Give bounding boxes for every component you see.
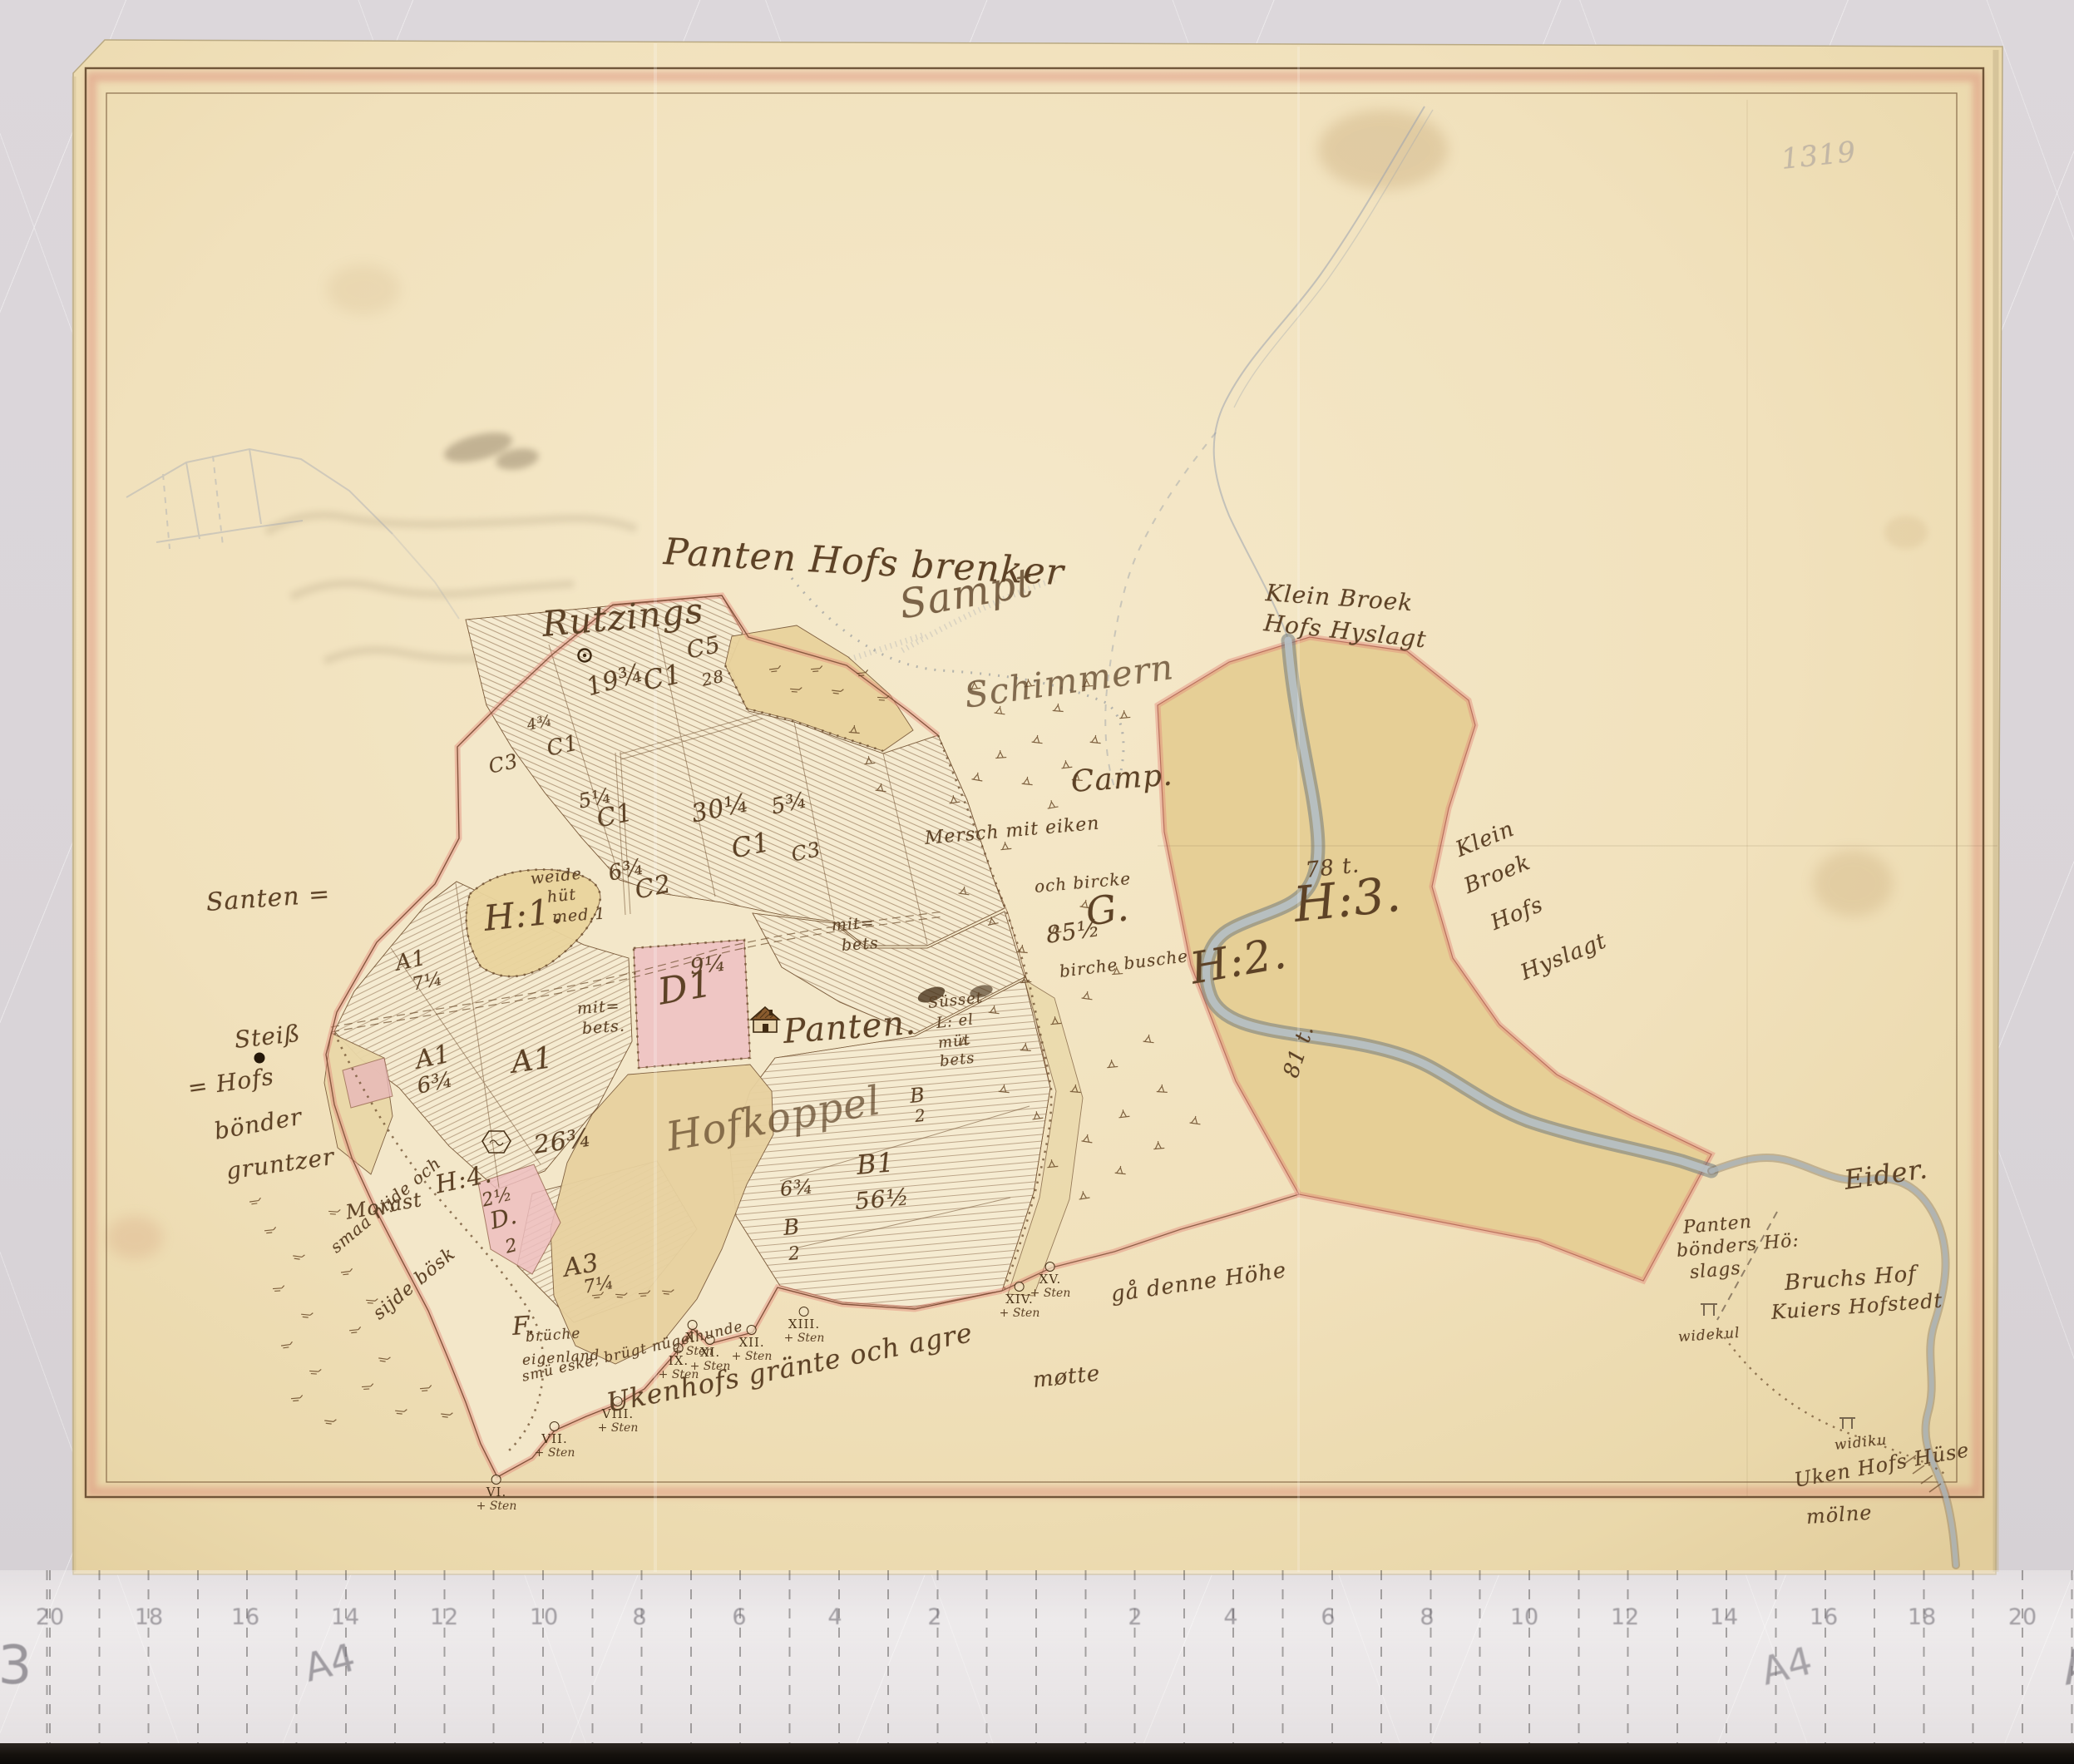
scanned-map-page: { "colors": { "ink": "#5d4226", "paper":…: [0, 0, 2074, 1764]
ruler-ticks: [0, 1570, 2074, 1764]
ruler-bottom-bar: [0, 1743, 2074, 1764]
ruler: [0, 1570, 2074, 1764]
map-artwork: [0, 0, 2074, 1764]
steiss-dot-icon: [254, 1053, 265, 1064]
